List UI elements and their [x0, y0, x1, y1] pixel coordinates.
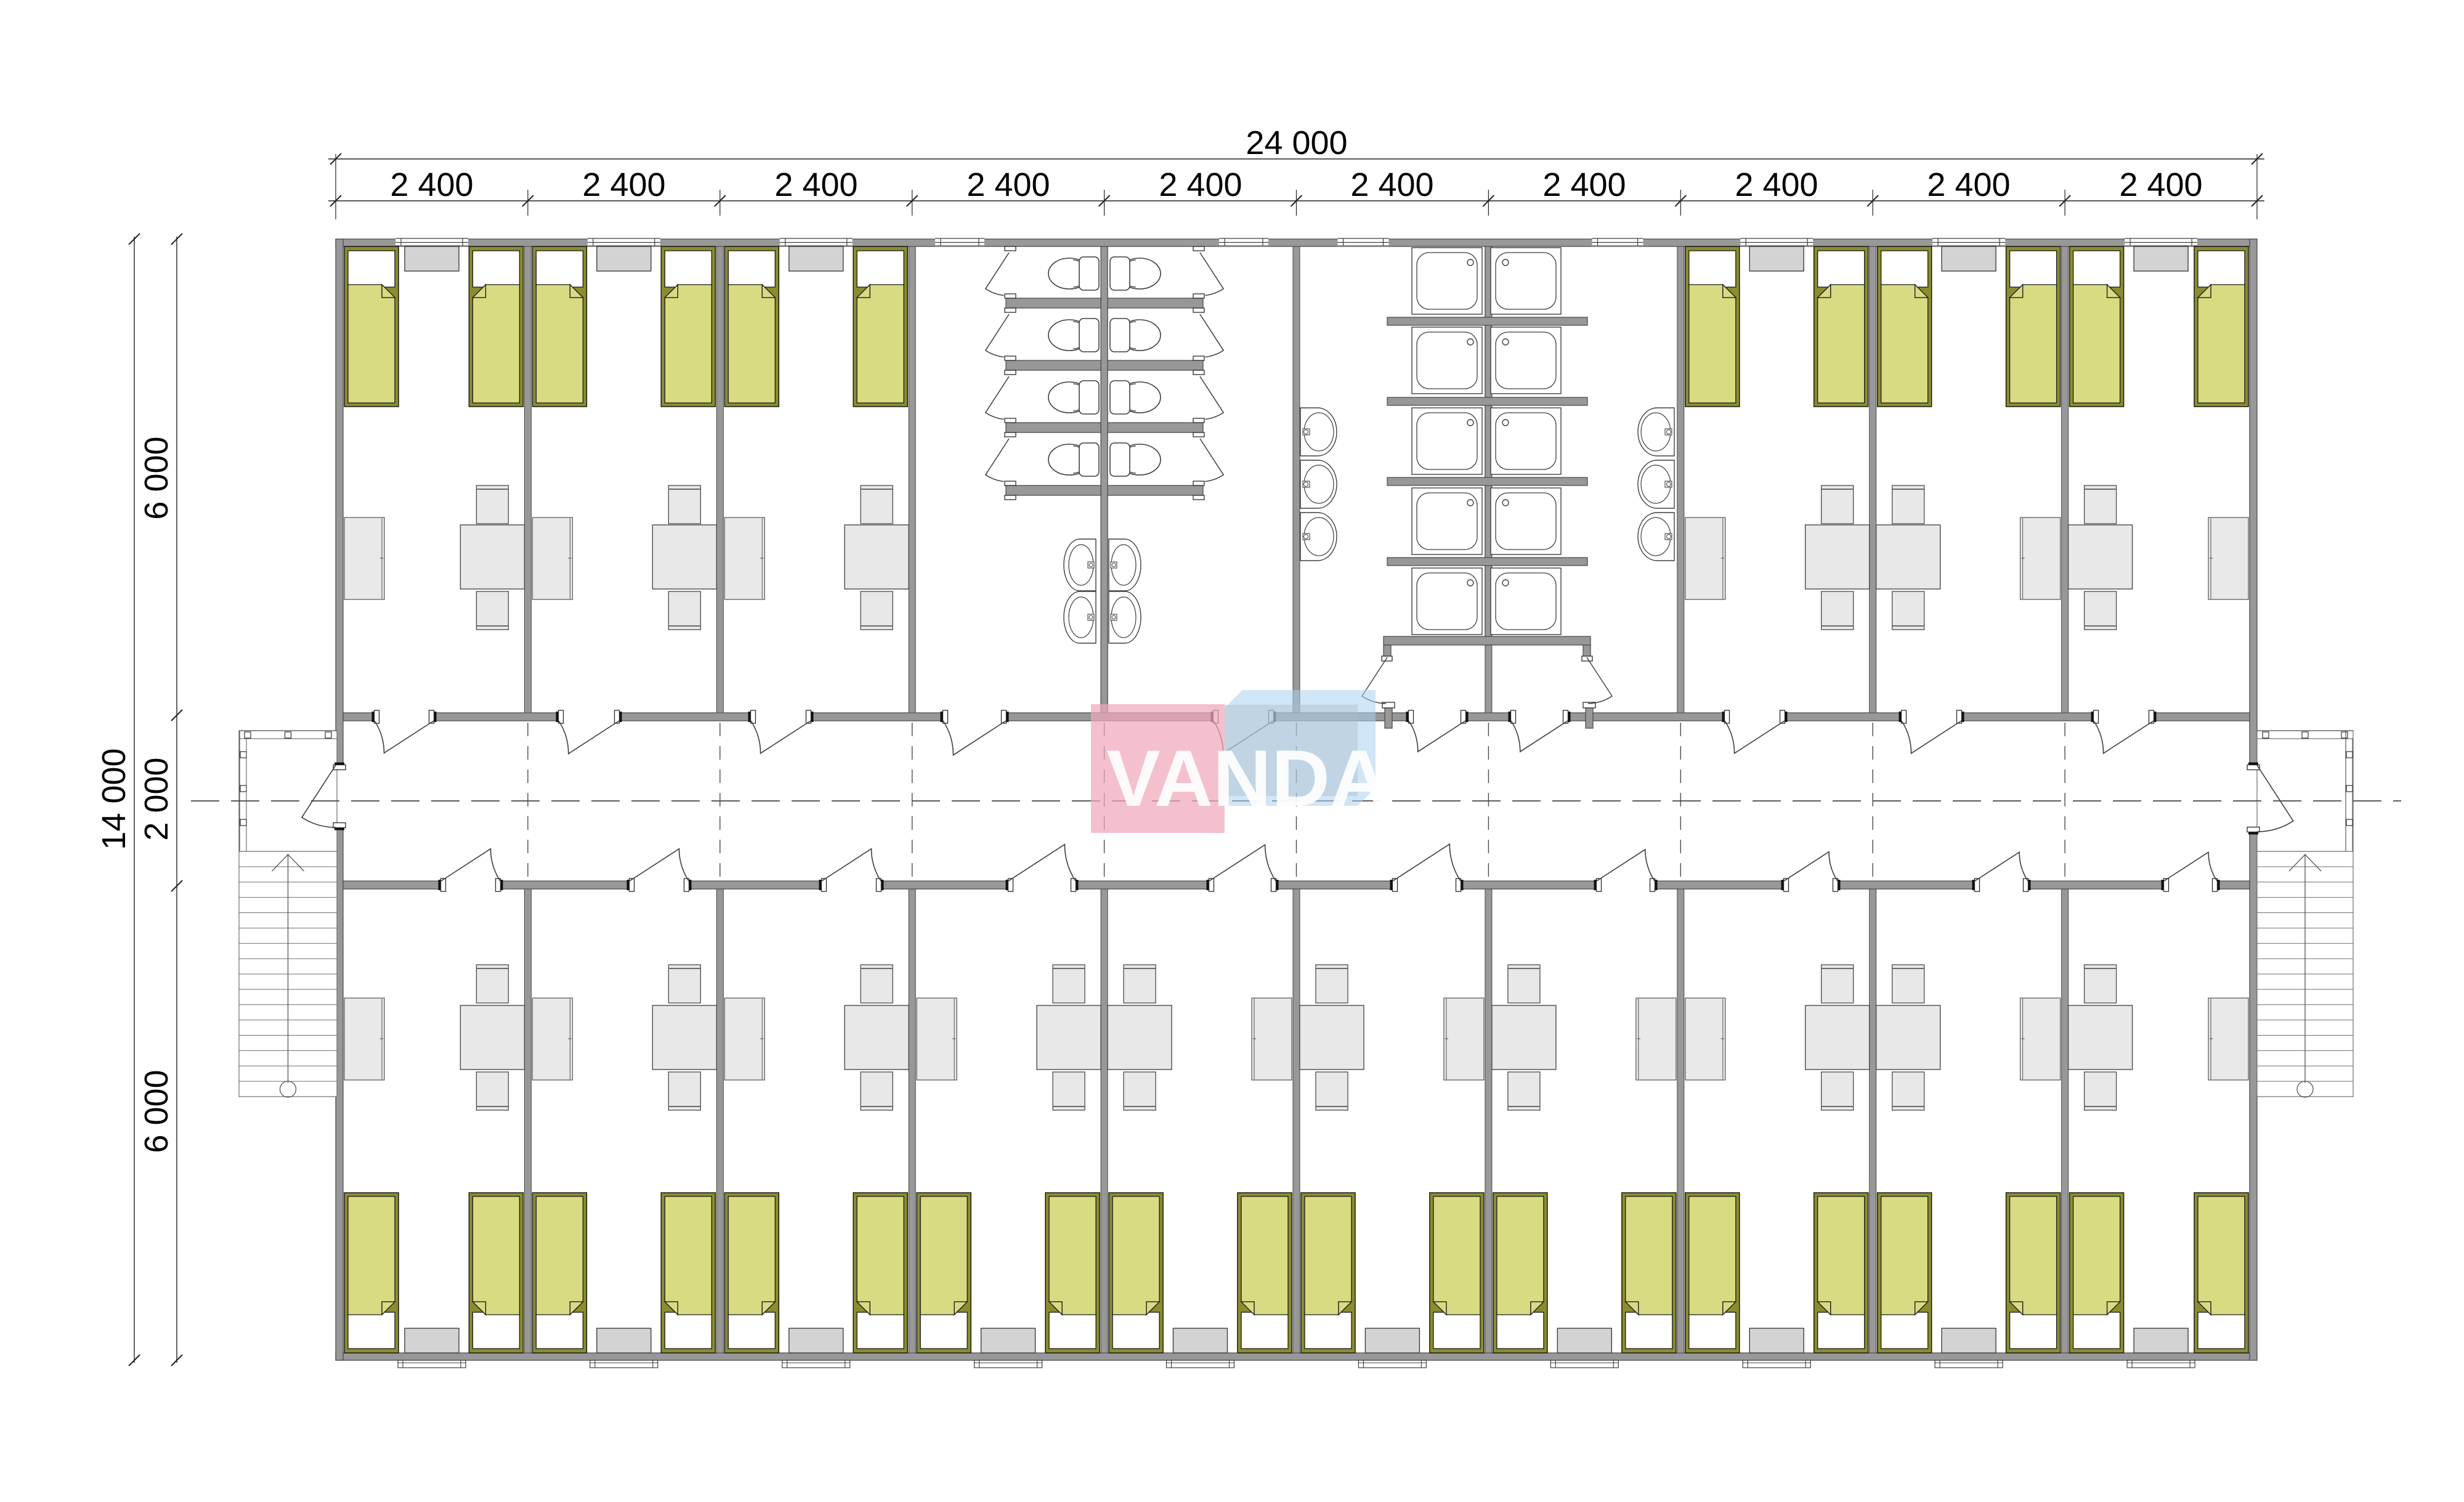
svg-text:2 400: 2 400	[1927, 166, 2010, 203]
svg-text:2 400: 2 400	[1735, 166, 1818, 203]
svg-text:6 000: 6 000	[138, 436, 175, 519]
svg-text:14 000: 14 000	[95, 748, 132, 850]
svg-text:2 400: 2 400	[390, 166, 473, 203]
svg-text:2 400: 2 400	[1159, 166, 1242, 203]
svg-text:2 400: 2 400	[582, 166, 665, 203]
svg-text:24 000: 24 000	[1246, 124, 1347, 161]
svg-text:6 000: 6 000	[138, 1070, 175, 1153]
svg-text:2 000: 2 000	[138, 757, 175, 840]
svg-text:2 400: 2 400	[2119, 166, 2202, 203]
svg-text:2 400: 2 400	[967, 166, 1050, 203]
svg-text:2 400: 2 400	[774, 166, 857, 203]
svg-text:2 400: 2 400	[1542, 166, 1626, 203]
svg-text:2 400: 2 400	[1350, 166, 1433, 203]
svg-text:VANDA: VANDA	[1106, 733, 1388, 823]
